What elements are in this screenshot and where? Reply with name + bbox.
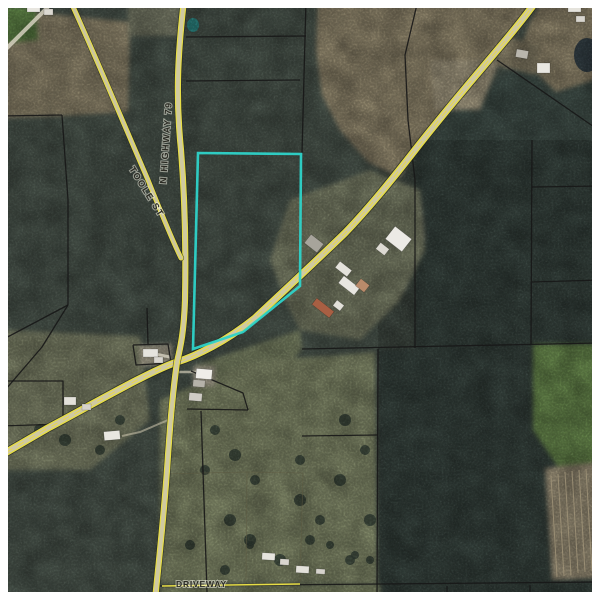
pond bbox=[187, 18, 199, 32]
building bbox=[27, 8, 40, 12]
building bbox=[104, 430, 121, 440]
building bbox=[82, 404, 91, 410]
tree bbox=[210, 425, 220, 435]
land-cover-patch bbox=[545, 462, 592, 580]
building bbox=[154, 357, 163, 363]
tree bbox=[250, 475, 260, 485]
tree bbox=[220, 565, 230, 575]
building bbox=[44, 9, 53, 15]
tree bbox=[294, 494, 306, 506]
tree bbox=[200, 465, 210, 475]
building bbox=[568, 8, 581, 12]
land-cover-patch bbox=[8, 8, 38, 44]
map-viewport[interactable]: N HIGHWAY 79 TOOLE ST DRIVEWAY bbox=[0, 0, 600, 600]
tree bbox=[305, 535, 315, 545]
tree bbox=[224, 514, 236, 526]
building bbox=[64, 397, 76, 405]
building bbox=[193, 379, 206, 387]
tree bbox=[326, 541, 334, 549]
tree bbox=[185, 540, 195, 550]
building bbox=[280, 559, 289, 565]
land-cover-patch bbox=[128, 8, 180, 36]
tree bbox=[351, 551, 359, 559]
tree bbox=[95, 445, 105, 455]
building bbox=[189, 392, 203, 401]
tree bbox=[339, 414, 351, 426]
building bbox=[537, 63, 550, 73]
road-label-driveway: DRIVEWAY bbox=[176, 579, 227, 589]
aerial-map-canvas[interactable]: N HIGHWAY 79 TOOLE ST DRIVEWAY bbox=[8, 8, 592, 592]
tree bbox=[115, 415, 125, 425]
building bbox=[576, 16, 585, 22]
building bbox=[316, 569, 325, 574]
tree bbox=[229, 449, 241, 461]
tree bbox=[315, 515, 325, 525]
tree bbox=[366, 556, 374, 564]
building bbox=[262, 553, 275, 561]
building bbox=[196, 368, 213, 379]
tree bbox=[59, 434, 71, 446]
building bbox=[143, 349, 158, 357]
tree bbox=[364, 514, 376, 526]
tree bbox=[246, 541, 254, 549]
building bbox=[296, 566, 309, 574]
building bbox=[515, 49, 528, 59]
aerial-basemap: N HIGHWAY 79 TOOLE ST DRIVEWAY bbox=[8, 8, 592, 592]
tree bbox=[360, 445, 370, 455]
tree bbox=[334, 474, 346, 486]
tree bbox=[295, 455, 305, 465]
